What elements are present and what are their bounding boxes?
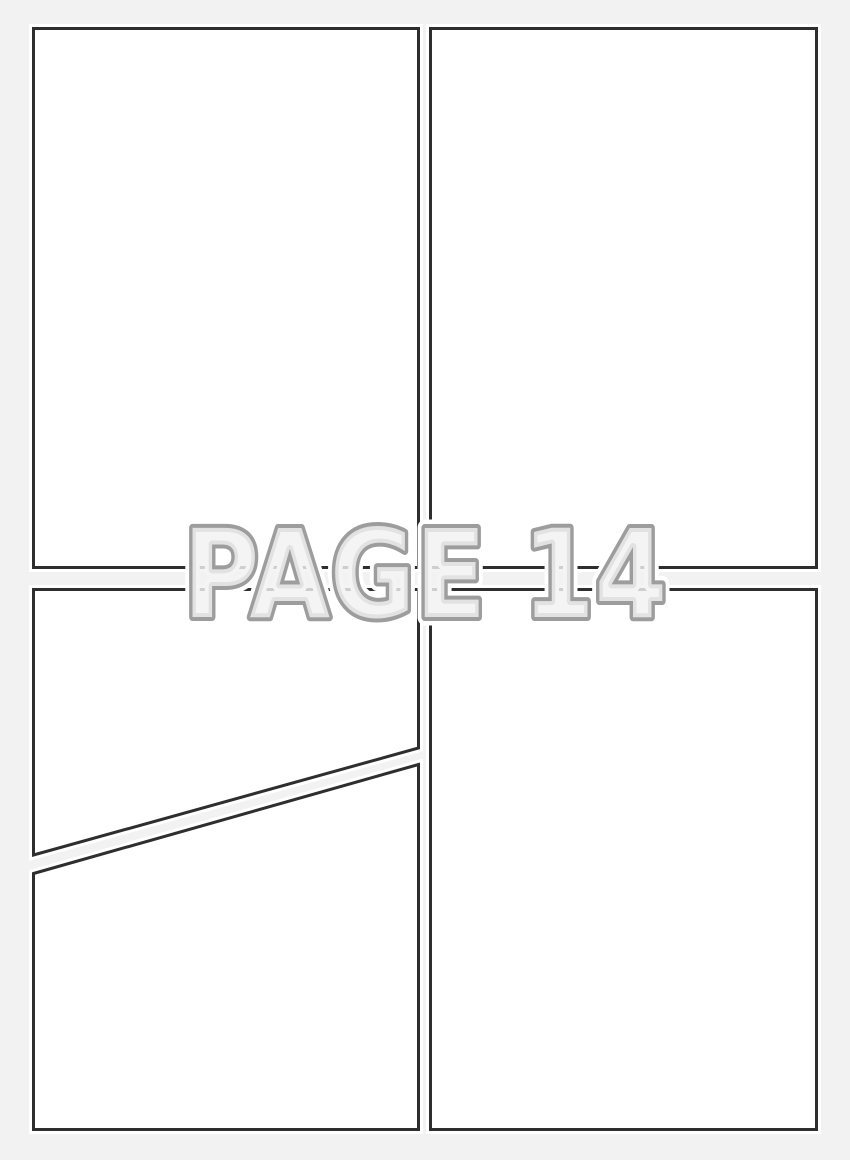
watermark-text: PAGE 14 bbox=[183, 504, 667, 646]
page-number-watermark: PAGE 14 PAGE 14 bbox=[0, 0, 850, 1160]
comic-page-template: PAGE 14 PAGE 14 bbox=[0, 0, 850, 1160]
